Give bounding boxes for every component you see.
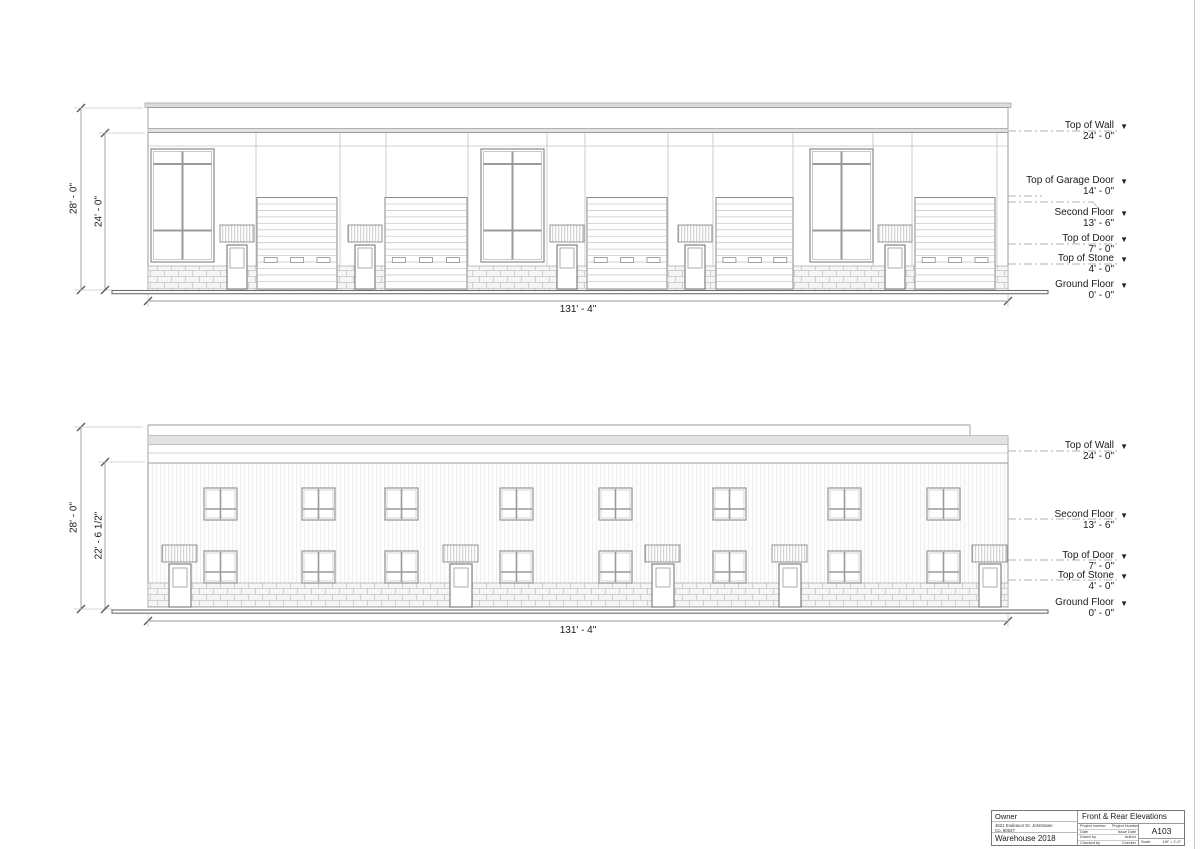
garage-door <box>257 198 337 290</box>
level-marker-icon: ▼ <box>1120 236 1128 244</box>
rear-window <box>713 488 746 520</box>
rear-window <box>385 488 418 520</box>
garage-door <box>716 198 793 290</box>
rear-window <box>713 551 746 583</box>
door-canopy <box>678 225 712 242</box>
rear-window <box>500 488 533 520</box>
rear-window <box>500 551 533 583</box>
level-marker-icon: ▼ <box>1120 210 1128 218</box>
level-label-front-top-of-wall: Top of Wall▼ 24' - 0" <box>947 121 1127 142</box>
rear-window <box>302 551 335 583</box>
level-marker-icon: ▼ <box>1120 123 1128 131</box>
rear-window <box>385 551 418 583</box>
level-marker-icon: ▼ <box>1120 282 1128 290</box>
title-block-project-info: Owner 4521 Endeavor Dr. Johnstown Co. 80… <box>992 811 1078 845</box>
level-label-front-top-of-door: Top of Door▼ 7' - 0" <box>947 234 1127 255</box>
sheet-right-border <box>1194 0 1195 849</box>
project-name: Warehouse 2018 <box>992 833 1077 845</box>
garage-door <box>587 198 667 290</box>
level-marker-icon: ▼ <box>1120 256 1128 264</box>
owner-name: Owner <box>992 811 1077 822</box>
front-elevation-drawing <box>112 103 1048 294</box>
sheet-title: Front & Rear Elevations <box>1078 811 1184 824</box>
door-canopy <box>772 545 807 562</box>
level-label-front-top-of-stone: Top of Stone▼ 4' - 0" <box>947 254 1127 275</box>
storefront-window <box>151 149 214 262</box>
door-canopy <box>878 225 912 242</box>
title-block-fields: Project numberProject Number DateIssue D… <box>1078 824 1139 845</box>
rear-window <box>828 551 861 583</box>
rear-parapet-band <box>148 436 1008 445</box>
door-canopy <box>220 225 254 242</box>
ground-line <box>112 610 1048 613</box>
level-label-rear-second-floor: Second Floor▼ 13' - 6" <box>947 510 1127 531</box>
level-marker-icon: ▼ <box>1120 178 1128 186</box>
level-label-rear-top-of-stone: Top of Stone▼ 4' - 0" <box>947 571 1127 592</box>
door-canopy <box>348 225 382 242</box>
rear-window <box>599 488 632 520</box>
sheet-number: A103 <box>1139 824 1184 839</box>
sheet-scale: Scale1/8" = 1'-0" <box>1139 839 1184 845</box>
level-marker-icon: ▼ <box>1120 512 1128 520</box>
front-height-dim-inner: 24' - 0" <box>94 177 105 247</box>
level-label-rear-top-of-door: Top of Door▼ 7' - 0" <box>947 551 1127 572</box>
level-label-front-ground-floor: Ground Floor▼ 0' - 0" <box>947 280 1127 301</box>
level-marker-icon: ▼ <box>1120 600 1128 608</box>
rear-height-dim-outer: 28' - 0" <box>69 483 80 553</box>
front-width-dim: 131' - 4" <box>518 304 638 315</box>
project-address: 4521 Endeavor Dr. Johnstown Co. 80537 <box>992 822 1077 833</box>
rear-stone-base <box>148 583 1008 607</box>
storefront-window <box>810 149 873 262</box>
door-canopy <box>443 545 478 562</box>
door-canopy <box>162 545 197 562</box>
level-label-rear-ground-floor: Ground Floor▼ 0' - 0" <box>947 598 1127 619</box>
rear-window <box>204 488 237 520</box>
ground-line <box>112 291 1048 294</box>
front-height-dim-outer: 28' - 0" <box>69 164 80 234</box>
parapet-face <box>148 108 1008 129</box>
level-marker-icon: ▼ <box>1120 573 1128 581</box>
field-checked-by: Checked byChecker <box>1078 841 1138 846</box>
rear-elevation-drawing <box>112 425 1048 613</box>
door-canopy <box>645 545 680 562</box>
parapet-cap <box>145 103 1011 108</box>
level-marker-icon: ▼ <box>1120 553 1128 561</box>
rear-width-dim: 131' - 4" <box>518 625 638 636</box>
level-label-rear-top-of-wall: Top of Wall▼ 24' - 0" <box>947 441 1127 462</box>
title-block: Owner 4521 Endeavor Dr. Johnstown Co. 80… <box>991 810 1185 846</box>
rear-window <box>204 551 237 583</box>
level-label-front-second-floor: Second Floor▼ 13' - 6" <box>947 208 1127 229</box>
rear-window <box>828 488 861 520</box>
drawing-sheet: 28' - 0" 24' - 0" 28' - 0" 22' - 6 1/2" … <box>0 0 1200 849</box>
door-canopy <box>550 225 584 242</box>
rear-window <box>599 551 632 583</box>
title-block-sheet-info: Front & Rear Elevations Project numberPr… <box>1078 811 1184 845</box>
level-label-front-top-of-garage-door: Top of Garage Door▼ 14' - 0" <box>947 176 1127 197</box>
storefront-window <box>481 149 544 262</box>
garage-door <box>385 198 467 290</box>
rear-height-dim-inner: 22' - 6 1/2" <box>94 501 105 571</box>
level-marker-icon: ▼ <box>1120 443 1128 451</box>
rear-window <box>302 488 335 520</box>
